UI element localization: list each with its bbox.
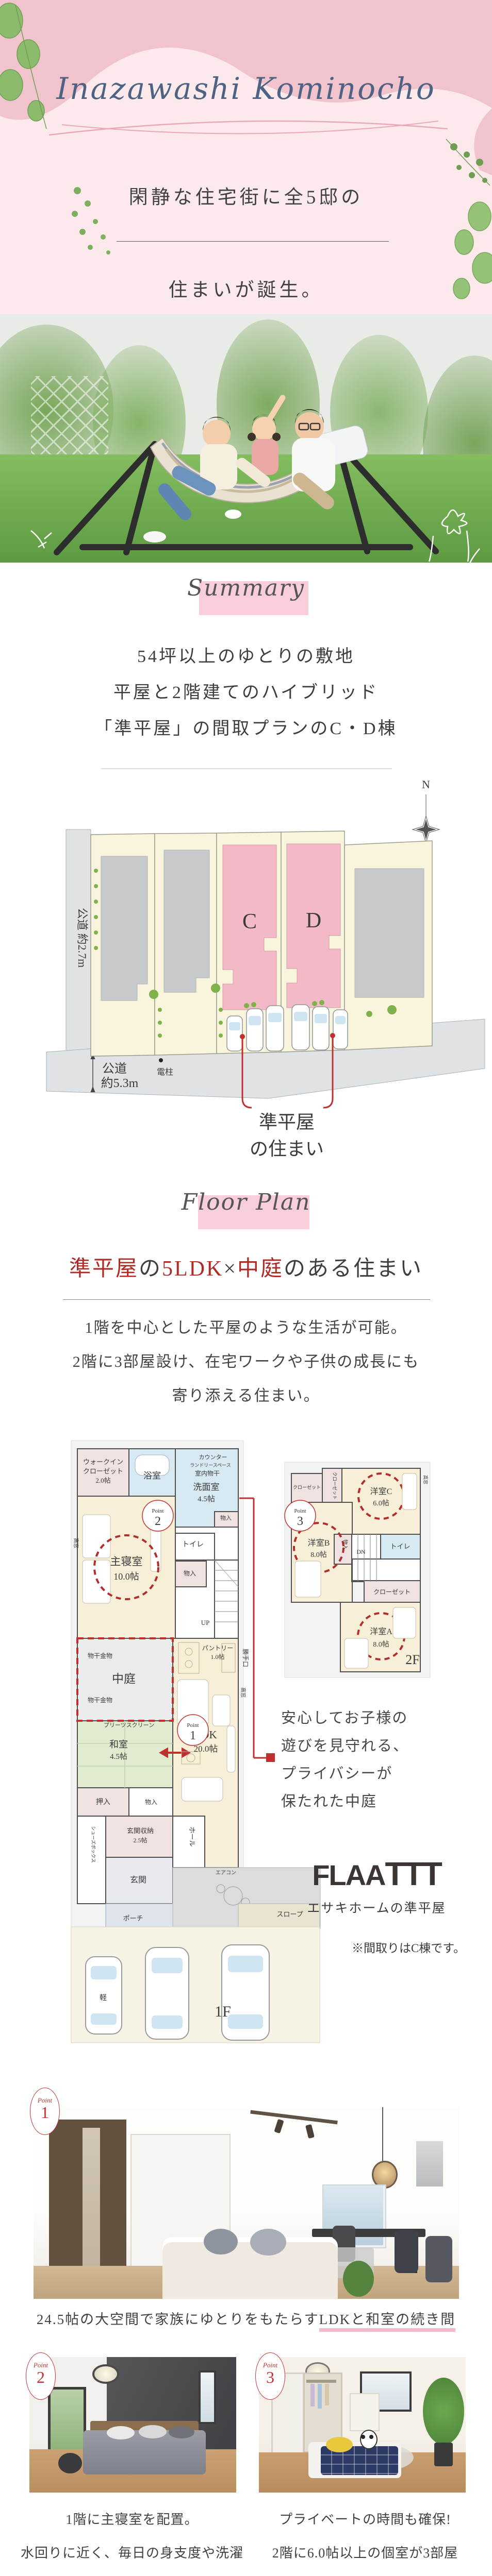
slit-window xyxy=(199,2370,216,2424)
floorplan-point-1: Point1 xyxy=(177,1715,208,1745)
siteplan-label: 公道 約2.7m xyxy=(76,908,89,968)
point-num-label: 3 xyxy=(297,1515,303,1528)
sofa xyxy=(162,2237,338,2299)
floorplan-1f-label: 和室 xyxy=(109,1739,128,1750)
hero-script-title: Inazawashi Kominocho xyxy=(0,71,492,106)
floorplan-1f-label: ホール xyxy=(188,1826,196,1846)
floorplan-2f-label: 高窓 xyxy=(423,1475,429,1484)
hero-section: Inazawashi Kominocho 閑静な住宅街に全5邸の 住まいが誕生。 xyxy=(0,0,492,314)
floorplan-1f-label: ポーチ xyxy=(123,1914,143,1922)
floorplan-2f-label: 8.0帖 xyxy=(373,1640,389,1649)
floorplan-2f-label: クローゼット xyxy=(373,1588,411,1596)
summary-line-3: 「準平屋」の間取プランのC・D棟 xyxy=(0,714,492,739)
siteplan-label: 準平屋 xyxy=(259,1112,315,1132)
floorplan-2f-label: 6.0帖 xyxy=(373,1499,389,1507)
floorplan-2f-label: 洋室B xyxy=(308,1538,330,1548)
point-word-label: Point xyxy=(152,1508,163,1514)
floorplan-1f-label: 1.0帖 xyxy=(210,1653,224,1660)
point-2-caption: 1階に主寝室を配置。水回りに近く、毎日の身支度や洗濯干しがスムーズに行えます。 xyxy=(20,2503,244,2576)
floorplan-heading-part: × xyxy=(223,1257,237,1281)
siteplan-label: C xyxy=(242,910,257,934)
floorplan-paragraph-3: 寄り添える住まい。 xyxy=(0,1383,492,1405)
floorplan-2f-label: 洋室A xyxy=(370,1627,392,1636)
floorplan-1f-label: 高窓 xyxy=(73,1538,79,1548)
floorplan-2f-label: トイレ xyxy=(390,1543,410,1550)
logo-text-ttt: TTT xyxy=(385,1855,441,1892)
point-3-caption: プライベートの時間も確保!2階に6.0帖以上の個室が3部屋 xyxy=(262,2503,468,2570)
siteplan-label: 約5.3m xyxy=(101,1076,139,1090)
point-2-badge: Point 2 xyxy=(26,2352,56,2400)
annotation-line: 遊びを見守れる、 xyxy=(281,1732,425,1760)
siteplan-label: N xyxy=(422,778,430,791)
floorplan-2f-label: 8.0帖 xyxy=(310,1551,327,1559)
point-word-label: Point xyxy=(187,1722,199,1728)
point-3-number: 3 xyxy=(256,2369,285,2385)
point-3-badge: Point 3 xyxy=(255,2352,285,2400)
floorplan-2f-label: 洋室C xyxy=(370,1487,392,1496)
floorplan-1f-label: 20.0帖 xyxy=(194,1744,218,1754)
annotation-line: プライバシーが xyxy=(281,1760,425,1788)
floorplan-1f-label: パントリー xyxy=(202,1645,234,1652)
hero-decor xyxy=(0,0,492,314)
logo-subtitle: エサキホームの準平屋 xyxy=(281,1898,472,1917)
father-figure xyxy=(290,409,337,512)
summary-line-1: 54坪以上のゆとりの敷地 xyxy=(0,642,492,667)
floorplan-1f-label: 玄関収納 xyxy=(127,1827,154,1835)
siteplan-label: D xyxy=(306,909,321,933)
floorplan-1f-label: 勝手口 xyxy=(242,1649,250,1667)
floorplan-1f-label: 4.5帖 xyxy=(198,1495,215,1503)
point-word-label: Point xyxy=(294,1508,306,1514)
floorplan-1f-label: 押入 xyxy=(96,1798,110,1806)
window xyxy=(48,2387,86,2454)
page: Inazawashi Kominocho 閑静な住宅街に全5邸の 住まいが誕生。 xyxy=(0,0,492,2576)
floorplan-heading-part: 準平屋 xyxy=(69,1257,139,1281)
site-plan-diagram: N公道 約2.7mCD電柱公道約5.3m準平屋の住まい xyxy=(0,768,492,1175)
yellow-pillow xyxy=(326,2437,353,2452)
point-num-label: 2 xyxy=(155,1515,161,1528)
dining-chair xyxy=(395,2230,418,2273)
courtyard-annotation: 安心してお子様の遊びを見守れる、プライバシーが保たれた中庭 xyxy=(281,1704,425,1816)
family-hammock-photo xyxy=(0,314,492,563)
ceiling-light xyxy=(92,2364,119,2384)
floorplan-1f-label: 物干金物 xyxy=(88,1652,112,1659)
floorplan-heading-part: のある住まい xyxy=(284,1257,423,1281)
plant xyxy=(423,2378,464,2445)
dining-chair xyxy=(425,2236,452,2282)
floorplan-1f-label: 物入 xyxy=(184,1570,196,1577)
floorplan-label: Floor Plan xyxy=(0,1189,492,1215)
point-1-caption: 24.5帖の大空間で家族にゆとりをもたらすLDKと和室の続き間 xyxy=(0,2308,492,2328)
floorplan-2f-label: クローゼット xyxy=(332,1472,338,1500)
siteplan-label: の住まい xyxy=(250,1139,324,1159)
hero-headline-2: 住まいが誕生。 xyxy=(0,274,492,302)
panda-plush xyxy=(360,2430,378,2449)
point-num-label: 1 xyxy=(190,1729,196,1742)
floorplan-1f-label: 玄関 xyxy=(130,1875,146,1885)
floorplan-1f-label: 高窓 xyxy=(240,1687,247,1698)
floorplan-1f-label: 浴室 xyxy=(143,1471,161,1481)
summary-label: Summary xyxy=(0,575,492,601)
floorplan-heading-part: 5LDK xyxy=(162,1257,223,1281)
stool xyxy=(58,2453,82,2473)
annotation-line: 保たれた中庭 xyxy=(281,1788,425,1816)
summary-line-2: 平屋と2階建てのハイブリッド xyxy=(0,678,492,703)
floorplan-1f-label: トイレ xyxy=(182,1541,204,1549)
floorplan-2f-label: 物入 xyxy=(342,1539,349,1550)
point-1-number: 1 xyxy=(30,2105,59,2120)
flower-doodle xyxy=(31,510,480,563)
floorplan-1f-label: 物入 xyxy=(220,1514,232,1521)
floorplan-1f-label: 洗面室 xyxy=(193,1482,220,1492)
floorplan-1f-label: ウォークイン xyxy=(83,1458,123,1466)
siteplan-label: 電柱 xyxy=(157,1067,173,1077)
floorplan-heading-part: の xyxy=(139,1257,162,1281)
floorplan-paragraph-2: 2階に3部屋設け、在宅ワークや子供の成長にも xyxy=(0,1349,492,1371)
desk-shelf xyxy=(350,2393,380,2431)
hero-headline-1: 閑静な住宅街に全5邸の xyxy=(0,181,492,209)
floorplan-2f-label: クローゼット xyxy=(293,1484,321,1490)
floorplan-1f-label: 2.0帖 xyxy=(95,1477,110,1484)
floorplan-heading-part: 中庭 xyxy=(237,1257,284,1281)
floorplan-note: ※間取りはC棟です。 xyxy=(352,1938,465,1956)
range-hood xyxy=(416,2141,443,2187)
master-bedroom-photo xyxy=(29,2357,236,2493)
floorplan-1f-label: UP xyxy=(201,1619,210,1626)
floorplan-1f-label: 軽 xyxy=(100,1994,107,2002)
floorplan-1f-label: カウンター xyxy=(199,1454,227,1461)
floorplan-1f-label: 物干金物 xyxy=(88,1696,112,1704)
floorplan-1f-label: エアコン xyxy=(216,1870,236,1876)
hero-divider xyxy=(117,241,389,242)
annotation-line: 安心してお子様の xyxy=(281,1704,425,1732)
floorplan-1f-label: 2.5帖 xyxy=(133,1836,147,1844)
floorplan-1f-label: 10.0帖 xyxy=(113,1571,139,1582)
floorplan-1f-label: 主寝室 xyxy=(110,1555,143,1568)
floorplan-heading: 準平屋の5LDK×中庭のある住まい xyxy=(0,1251,492,1282)
floorplan-1f-label: プリーツスクリーン xyxy=(104,1722,154,1728)
floorplan-2f-label: DN xyxy=(356,1548,366,1555)
mother-figure xyxy=(143,417,237,543)
ldk-interior-photo xyxy=(34,2107,459,2299)
flaattt-logo: FLAATTT エサキホームの準平屋 xyxy=(281,1855,472,1917)
floorplan-1f-label: 中庭 xyxy=(112,1672,136,1685)
floorplan-1f-label: 室内物干 xyxy=(195,1469,220,1477)
floorplan-paragraph-1: 1階を中心とした平屋のような生活が可能。 xyxy=(0,1315,492,1337)
floorplan-1f-label: ランドリースペース xyxy=(190,1463,231,1468)
floorplan-1f-label: 物入 xyxy=(145,1799,157,1806)
logo-text-flaa: FLAA xyxy=(312,1859,385,1891)
hammock-scene xyxy=(0,314,492,563)
floorplan-1f-label: シューズボックス xyxy=(91,1826,96,1862)
floorplan-1f-label: 4.5帖 xyxy=(110,1752,127,1761)
floorplan-point-2: Point2 xyxy=(142,1500,173,1531)
floorplan-1f-label: クローゼット xyxy=(83,1467,123,1475)
plant xyxy=(343,2261,374,2297)
floorplan-1f-label: 1F xyxy=(215,2003,231,2020)
kids-room-photo xyxy=(259,2357,466,2493)
point-2-number: 2 xyxy=(26,2369,55,2385)
siteplan-label: 公道 xyxy=(102,1062,127,1076)
floorplan-divider xyxy=(63,1299,430,1300)
point-1-badge: Point 1 xyxy=(30,2088,60,2135)
floorplan-2f-label: 2F xyxy=(405,1652,419,1667)
plant-pot xyxy=(434,2443,453,2466)
floorplan-point-3: Point3 xyxy=(285,1500,316,1531)
